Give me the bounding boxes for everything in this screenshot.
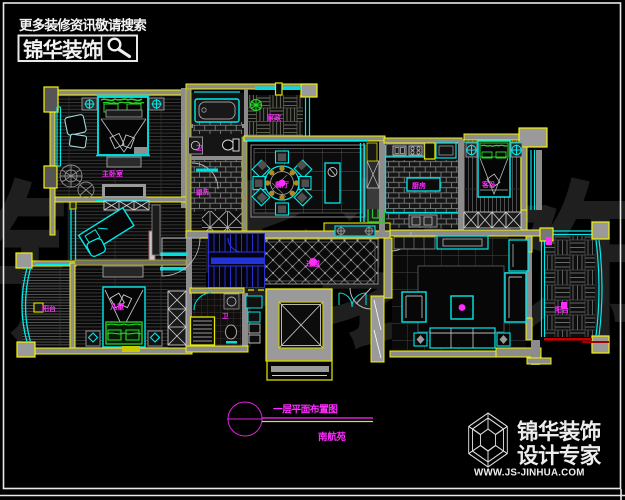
- svg-text:卫: 卫: [222, 312, 229, 320]
- svg-text:阳台: 阳台: [42, 304, 56, 313]
- svg-text:WWW.JS-JINHUA.COM: WWW.JS-JINHUA.COM: [474, 468, 585, 479]
- svg-text:更多装修资讯敬请搜索: 更多装修资讯敬请搜索: [19, 17, 147, 33]
- svg-text:厨房: 厨房: [412, 181, 426, 190]
- svg-text:儿童: 儿童: [109, 302, 124, 311]
- svg-text:盥洗: 盥洗: [196, 187, 210, 196]
- svg-text:设计专家: 设计专家: [517, 443, 602, 468]
- svg-text:南航苑: 南航苑: [318, 431, 346, 443]
- svg-text:家政: 家政: [267, 113, 282, 122]
- svg-text:一层平面布置图: 一层平面布置图: [273, 403, 338, 416]
- svg-text:卫: 卫: [196, 144, 203, 152]
- svg-text:锦华装饰: 锦华装饰: [517, 419, 601, 444]
- svg-text:锦华装饰: 锦华装饰: [23, 38, 101, 62]
- svg-text:主卧室: 主卧室: [102, 169, 123, 178]
- svg-text:客卧: 客卧: [481, 180, 496, 189]
